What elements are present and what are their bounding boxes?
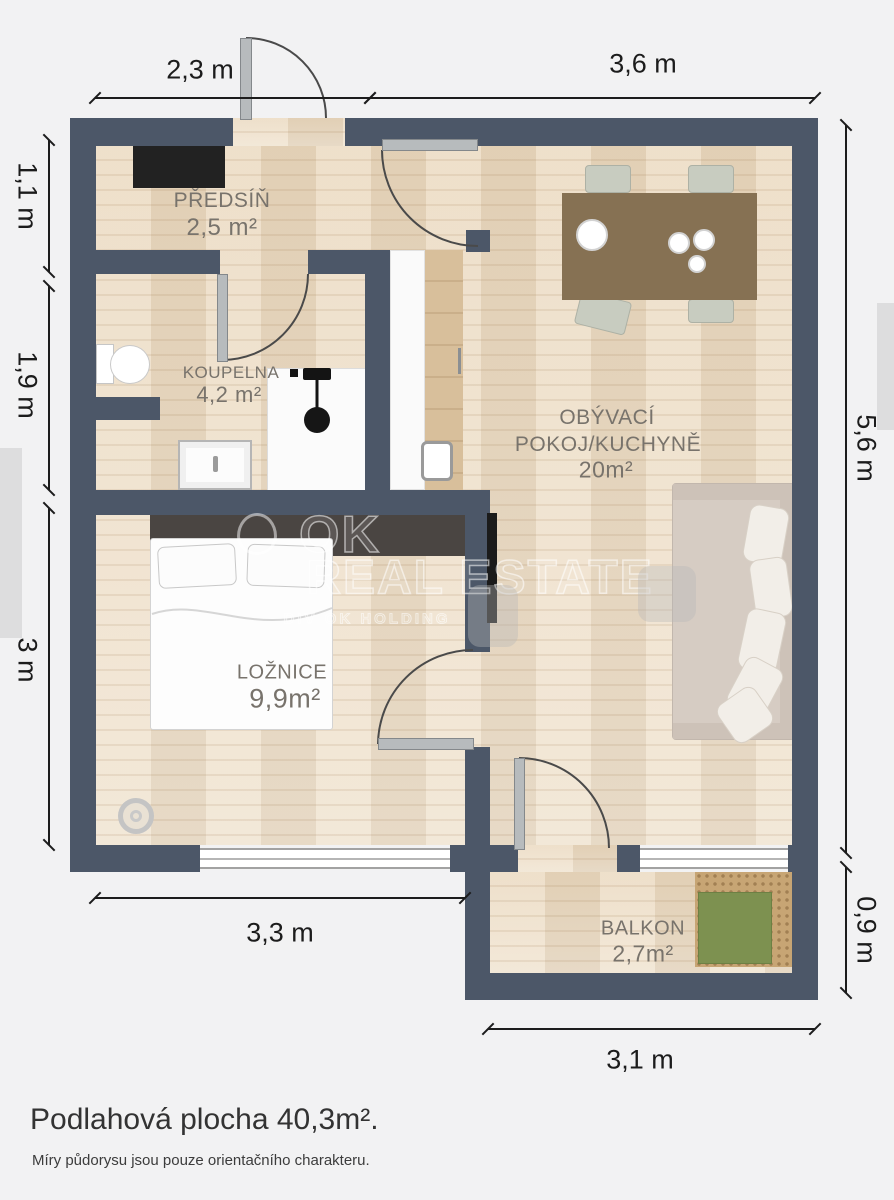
floor-entrance-threshold [233,118,345,146]
wall-bath-right [365,250,390,492]
room-label-balcony: BALKON [601,918,685,941]
wall-living-balcony-c [788,845,818,872]
dining-chair [585,165,631,193]
plate [576,219,608,251]
watermark-edge-bar-right [877,303,894,430]
plate [668,232,690,254]
doormat [133,146,225,188]
room-label-bathroom: KOUPELNA [183,363,280,383]
living-door-leaf [382,139,478,151]
toilet-bowl [110,345,150,384]
floorplan-canvas: 2,3 m 3,6 m 1,1 m 1,9 m 3 m 5,6 m 0,9 m … [0,0,894,1200]
room-area-bedroom: 9,9m² [249,684,321,715]
kitchen-counter [390,250,425,490]
kitchen-sink [421,441,453,481]
plate [688,255,706,273]
dim-label-right-bottom: 0,9 m [851,896,882,964]
plate [693,229,715,251]
watermark-fragment [468,585,518,647]
balcony-window [640,848,788,869]
floor-balcony-threshold [518,845,617,872]
room-area-living: 20m² [579,457,633,484]
wall-balcony-bottom [465,973,818,1000]
wall-bath-bottom [96,490,490,515]
round-pouf [118,798,154,834]
room-label-living-line2: POKOJ/KUCHYNĚ [515,433,701,457]
bedroom-window [200,848,450,869]
dim-line-left-middle [48,286,50,490]
balcony-grass-mat [698,892,772,964]
window-glass-line [200,858,450,860]
dim-line-right-bottom [845,867,847,993]
wall-hall-bottom-a [96,250,220,274]
wall-door-stub [466,230,490,252]
dim-label-left-middle: 1,9 m [12,351,43,419]
shower [267,368,367,492]
dim-line-right-top [845,125,847,853]
bathroom-door-leaf [217,274,228,362]
room-area-bathroom: 4,2 m² [196,382,261,408]
room-area-hallway: 2,5 m² [186,214,257,242]
room-label-living-line1: OBÝVACÍ [559,406,654,430]
wall-living-balcony-b [617,845,640,872]
disclaimer-text: Míry půdorysu jsou pouze orientačního ch… [32,1152,370,1169]
dim-line-left-top [48,140,50,272]
sofa-armrest [673,484,794,500]
dim-line-bottom-right [488,1028,815,1030]
bed-pillow [157,543,237,589]
dim-line-bottom-left [95,897,465,899]
wall-left [70,118,96,872]
dining-chair [688,299,734,323]
dim-label-top-right: 3,6 m [609,49,677,80]
watermark-edge-bar-left [0,448,22,638]
total-area-text: Podlahová plocha 40,3m². [30,1103,379,1137]
dim-label-bottom-left: 3,3 m [246,918,314,949]
watermark-logo-icon [237,513,277,555]
pouf-inner-ring [130,810,142,822]
faucet-icon [213,456,218,472]
dining-chair [688,165,734,193]
bathroom-sink [178,440,252,490]
dim-line-top-left [95,97,370,99]
wall-toilet-stub [96,397,160,420]
dim-label-top-left: 2,3 m [166,55,234,86]
room-label-bedroom: LOŽNICE [237,662,327,685]
watermark-subtitle: DIV OK HOLDING [283,611,450,628]
dim-line-top-right [370,97,815,99]
dim-label-left-top: 1,1 m [12,162,43,230]
room-area-balcony: 2,7m² [612,941,673,968]
entrance-door-arc [246,38,326,118]
room-label-hallway: PŘEDSÍŇ [174,189,271,213]
wall-bedroom-bottom-a [70,845,200,872]
dim-line-left-bottom [48,508,50,845]
dim-label-left-bottom: 3 m [12,637,43,682]
entrance-door-leaf [240,38,252,120]
window-glass-line [640,858,788,860]
balcony-door-leaf [514,758,525,850]
watermark-fragment [638,566,696,622]
dim-label-bottom-right: 3,1 m [606,1045,674,1076]
cabinet-handle [458,348,461,374]
bedroom-door-leaf [378,738,474,750]
